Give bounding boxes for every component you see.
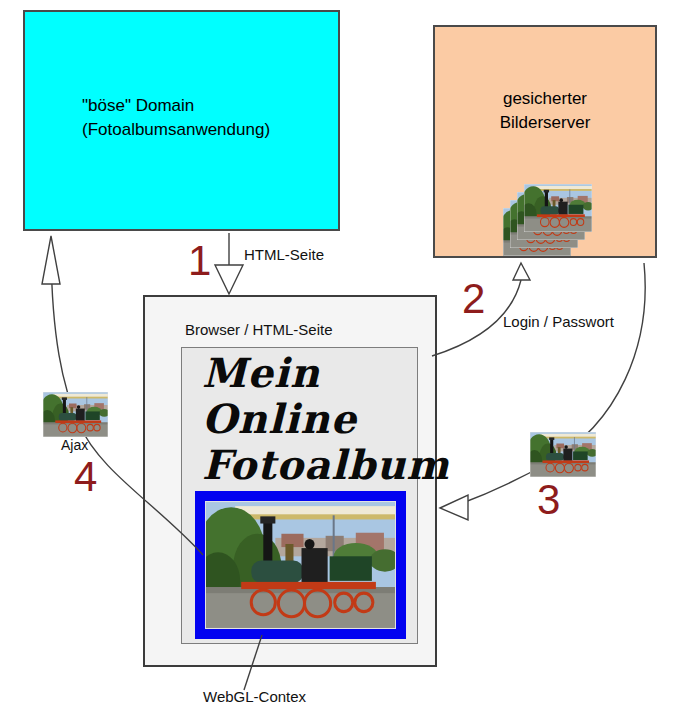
step1-label: HTML-Seite	[244, 246, 324, 263]
bad-domain-text: "böse" Domain (Fotoalbumsanwendung)	[82, 94, 270, 142]
server-photo-stack-1	[524, 184, 592, 232]
step4-number: 4	[74, 456, 97, 498]
bad-domain-line2: (Fotoalbumsanwendung)	[82, 118, 270, 142]
diagram-canvas: "böse" Domain (Fotoalbumsanwendung) gesi…	[0, 0, 687, 723]
image-server-box: gesicherter Bilderserver	[433, 25, 657, 258]
album-title-line3: Fotoalbum	[202, 442, 450, 488]
ajax-thumbnail-photo	[43, 392, 108, 437]
step2-label: Login / Passwort	[503, 313, 614, 330]
album-title-line2: Online	[202, 396, 450, 442]
image-server-text: gesicherter Bilderserver	[435, 87, 655, 135]
arrow-2-head	[513, 263, 530, 280]
bad-domain-line1: "böse" Domain	[82, 94, 270, 118]
server-thumbnail-photo	[530, 432, 596, 477]
image-server-line2: Bilderserver	[435, 111, 655, 135]
step1-number: 1	[188, 240, 211, 282]
webgl-context-label: WebGL-Contex	[203, 688, 306, 705]
arrow-4-head	[42, 236, 60, 284]
bad-domain-box: "böse" Domain (Fotoalbumsanwendung)	[23, 10, 340, 231]
webgl-photo-frame	[195, 491, 406, 639]
browser-box: Browser / HTML-Seite Mein Online Fotoalb…	[143, 295, 437, 667]
album-title: Mein Online Fotoalbum	[202, 350, 450, 488]
arrow-1-head	[215, 265, 243, 294]
image-server-line1: gesicherter	[435, 87, 655, 111]
step3-number: 3	[537, 479, 560, 521]
arrow-3-head	[440, 495, 468, 520]
step2-number: 2	[462, 278, 485, 320]
step4-label: Ajax	[61, 437, 88, 453]
album-title-line1: Mein	[202, 350, 450, 396]
main-locomotive-photo	[205, 501, 396, 629]
album-page: Mein Online Fotoalbum	[181, 347, 418, 644]
browser-label: Browser / HTML-Seite	[185, 321, 333, 338]
